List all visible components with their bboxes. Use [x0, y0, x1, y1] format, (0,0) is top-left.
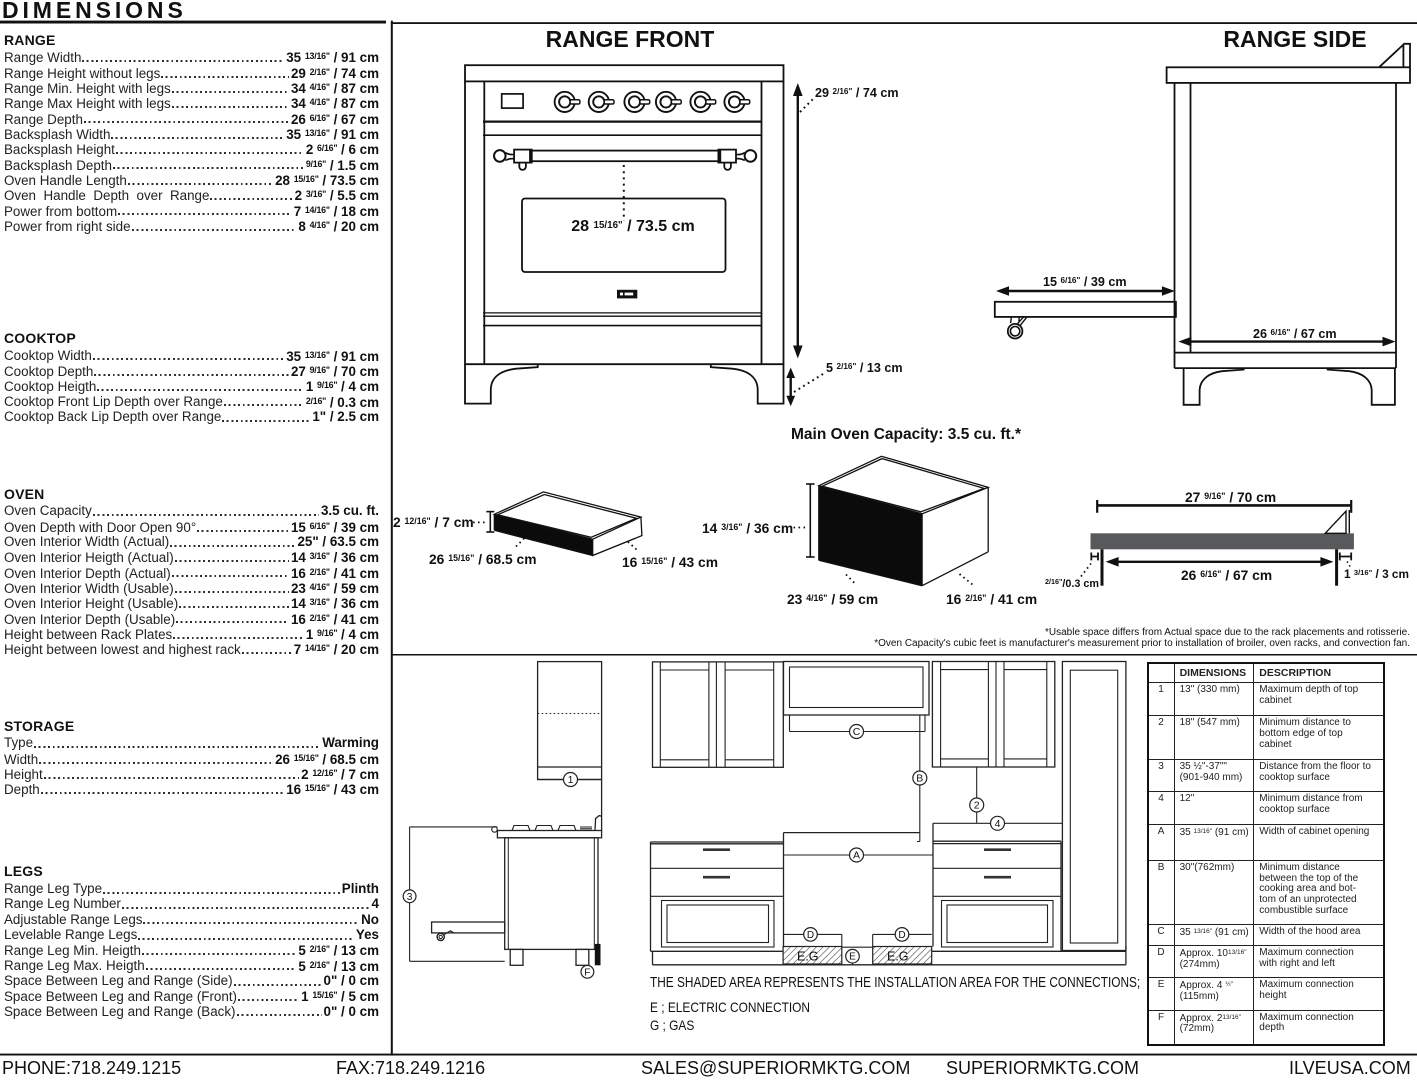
svg-text:3: 3	[407, 892, 413, 903]
svg-text:E.G: E.G	[887, 949, 909, 963]
svg-text:D: D	[807, 930, 814, 941]
svg-text:B: B	[916, 773, 923, 785]
svg-text:1: 1	[568, 774, 574, 786]
svg-text:D: D	[898, 930, 905, 941]
svg-text:F: F	[584, 967, 590, 978]
svg-text:C: C	[853, 726, 861, 738]
svg-text:4: 4	[995, 818, 1001, 830]
svg-text:E.G: E.G	[797, 949, 819, 963]
svg-text:A: A	[853, 850, 860, 862]
svg-text:2: 2	[974, 800, 980, 812]
svg-text:E: E	[849, 952, 856, 963]
